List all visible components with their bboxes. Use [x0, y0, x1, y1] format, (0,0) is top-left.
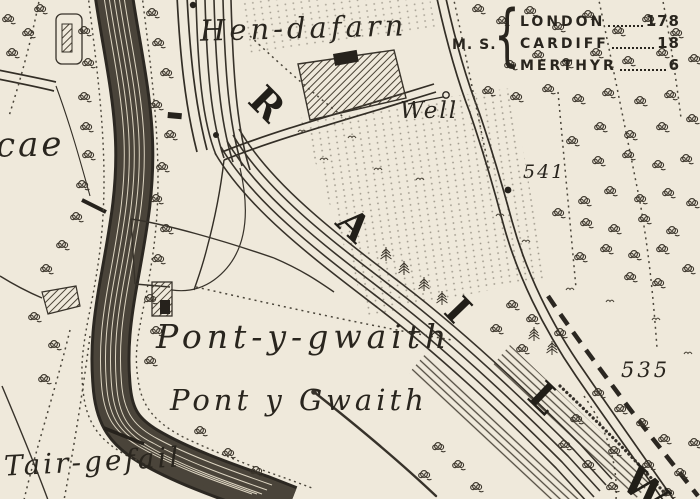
dotted-leader — [620, 69, 666, 71]
distance-row-cardiff: CARDIFF 18 — [520, 34, 680, 52]
label-pont-y-gwaith-farm: Pont-y-gwaith — [156, 320, 451, 353]
label-hen-dafarn: Hen-dafarn — [200, 11, 408, 45]
historic-os-map: Hen-dafarn cae Well 541 535 Pont-y-gwait… — [0, 0, 700, 499]
destination-name: CARDIFF — [520, 36, 609, 52]
distance-row-london: LONDON 178 — [520, 12, 680, 30]
railway-embankment — [409, 345, 652, 499]
map-artwork — [0, 0, 700, 499]
distance-brace: { — [494, 2, 520, 70]
destination-name: MERTHYR — [520, 58, 617, 74]
distance-row-merthyr: MERTHYR 6 — [520, 56, 680, 74]
footbridge — [82, 200, 106, 212]
road-marker-dot — [505, 187, 512, 194]
distance-prefix: M. S. — [452, 37, 497, 53]
label-well: Well — [400, 100, 458, 123]
siding — [172, 168, 245, 291]
dotted-leader — [608, 25, 642, 27]
riverside-structure — [42, 286, 80, 314]
spot-height-535: 535 — [621, 360, 670, 381]
distance-miles: 178 — [646, 12, 680, 30]
distance-miles: 18 — [657, 34, 680, 52]
destination-name: LONDON — [520, 14, 605, 30]
spot-height-541: 541 — [523, 163, 565, 182]
river — [82, 0, 290, 499]
dotted-leader — [612, 47, 654, 49]
label-cae-fragment: cae — [0, 127, 65, 162]
label-pont-y-gwaith-hamlet: Pont y Gwaith — [170, 386, 428, 415]
distance-miles: 6 — [669, 56, 680, 74]
